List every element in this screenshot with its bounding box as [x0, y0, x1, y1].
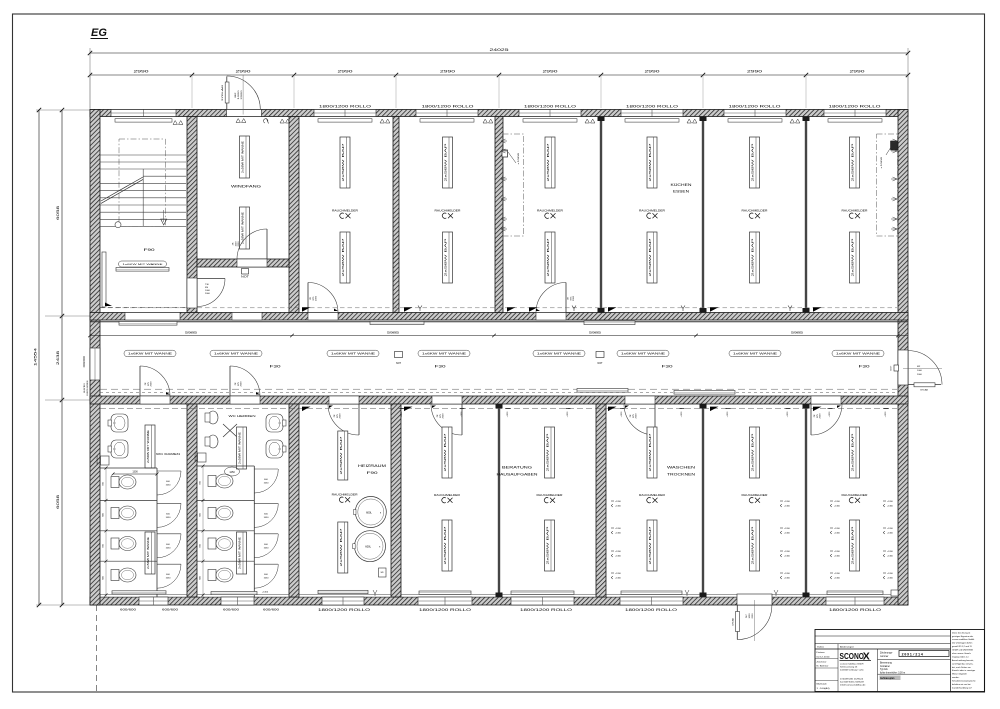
svg-text:F30: F30 [662, 365, 673, 369]
svg-text:1650: 1650 [166, 547, 172, 549]
svg-text:Aufmassplan: Aufmassplan [880, 677, 895, 680]
svg-text:KÜCHEN: KÜCHEN [671, 183, 693, 187]
svg-text:1800/1200 ROLLO: 1800/1200 ROLLO [625, 608, 677, 612]
svg-text:1x6KW MIT WANNE: 1x6KW MIT WANNE [123, 263, 164, 266]
svg-text:+1200: +1200 [885, 411, 887, 418]
svg-text:+1300: +1300 [784, 577, 791, 579]
svg-text:WINDFANG: WINDFANG [231, 185, 262, 189]
svg-text:F30: F30 [270, 365, 281, 369]
svg-text:WB DECKE: WB DECKE [195, 452, 197, 462]
svg-text:2x58W MIT WANNE: 2x58W MIT WANNE [147, 537, 150, 569]
svg-text:behalten wir uns bei: behalten wir uns bei [952, 683, 971, 686]
svg-text:1500/2000: 1500/2000 [83, 356, 86, 368]
svg-text:gemäß §§ 1,2 und 11: gemäß §§ 1,2 und 11 [952, 646, 972, 648]
svg-text:tel 0049 6431 21290-04: tel 0049 6431 21290-04 [840, 677, 864, 680]
svg-text:1800/1200 ROLLO: 1800/1200 ROLLO [829, 608, 881, 612]
svg-text:1650: 1650 [264, 578, 270, 580]
svg-text:Maßstab: Maßstab [817, 682, 828, 685]
svg-text:2000: 2000 [917, 374, 923, 376]
svg-text:2990: 2990 [645, 70, 660, 74]
svg-text:Benennung: Benennung [880, 662, 892, 664]
svg-text:600L: 600L [365, 545, 371, 549]
svg-text:1800/1200 ROLLO: 1800/1200 ROLLO [829, 105, 881, 109]
svg-text:1000: 1000 [749, 613, 751, 619]
svg-text:Typ EG: Typ EG [880, 669, 888, 671]
svg-text:RAUCHMELDER: RAUCHMELDER [639, 493, 665, 497]
svg-text:NOT: NOT [241, 277, 250, 279]
svg-text:info@sconox-mobilbau.de: info@sconox-mobilbau.de [840, 684, 866, 686]
svg-text:370LAB: 370LAB [221, 84, 224, 101]
svg-text:1x6KW MIT WANNE: 1x6KW MIT WANNE [214, 352, 259, 355]
svg-text:+1200: +1200 [784, 528, 791, 530]
svg-text:+1300: +1300 [615, 505, 622, 507]
svg-text:2990: 2990 [850, 70, 865, 74]
svg-text:+1300: +1300 [887, 555, 894, 557]
svg-text:2x58W BAP: 2x58W BAP [752, 238, 755, 277]
svg-text:2438: 2438 [56, 351, 60, 365]
svg-text:RAUCHMELDER: RAUCHMELDER [434, 493, 460, 497]
svg-text:RS: RS [205, 287, 209, 289]
svg-text:+1200: +1200 [834, 528, 841, 530]
svg-text:Ausschreibung benutzt,: Ausschreibung benutzt, [952, 659, 974, 662]
svg-text:2000: 2000 [573, 295, 575, 301]
svg-text:+1200: +1200 [615, 573, 622, 575]
svg-text:RAUCHMELDER: RAUCHMELDER [842, 209, 868, 213]
svg-text:+1200: +1200 [887, 551, 894, 553]
svg-text:F30: F30 [859, 365, 870, 369]
svg-text:2x58W BAP: 2x58W BAP [342, 143, 345, 182]
svg-text:RAUCHMELDER: RAUCHMELDER [435, 209, 461, 213]
svg-text:2x58W BAP: 2x58W BAP [547, 143, 550, 182]
svg-text:2000: 2000 [820, 413, 822, 419]
svg-text:24025: 24025 [490, 48, 509, 52]
svg-text:+1200: +1200 [507, 411, 509, 418]
svg-text:NOT: NOT [597, 362, 603, 365]
svg-text:DURCH BODEN: DURCH BODEN [87, 380, 89, 395]
svg-text:NOT: NOT [396, 362, 402, 365]
svg-text:2x58W MIT WANNE: 2x58W MIT WANNE [242, 212, 245, 244]
svg-text:1800/1200 ROLLO: 1800/1200 ROLLO [626, 105, 678, 109]
svg-text:2990: 2990 [134, 70, 149, 74]
svg-text:ohne unsere Geneh-: ohne unsere Geneh- [952, 652, 971, 655]
svg-text:Änderungen: Änderungen [840, 646, 855, 649]
svg-text:600/600: 600/600 [223, 608, 239, 612]
svg-text:1000: 1000 [235, 241, 237, 247]
svg-text:2x58W BAP: 2x58W BAP [649, 143, 652, 182]
svg-text:370LAB: 370LAB [732, 618, 735, 626]
svg-text:+1200: +1200 [615, 528, 622, 530]
svg-text:6058: 6058 [56, 495, 60, 509]
svg-text:1x6KW MIT WANNE: 1x6KW MIT WANNE [836, 352, 881, 355]
svg-text:+1200: +1200 [834, 573, 841, 575]
svg-text:+1300: +1300 [615, 532, 622, 534]
svg-text:lichte Innenhöhe: 3,30 m: lichte Innenhöhe: 3,30 m [880, 671, 905, 674]
svg-text:sconox mobilbau GmbH: sconox mobilbau GmbH [840, 663, 864, 665]
svg-text:1650: 1650 [166, 517, 172, 519]
svg-text:RAUCHMELDER: RAUCHMELDER [742, 209, 768, 213]
svg-text:+1200: +1200 [784, 501, 791, 503]
svg-text:2990: 2990 [747, 70, 762, 74]
svg-text:1x6KW MIT WANNE: 1x6KW MIT WANNE [733, 352, 778, 355]
svg-text:1x6KW MIT WANNE: 1x6KW MIT WANNE [422, 352, 467, 355]
svg-text:2x58W BAP: 2x58W BAP [852, 143, 855, 182]
svg-text:2000: 2000 [752, 613, 754, 619]
svg-text:2x58W BAP: 2x58W BAP [342, 238, 345, 277]
svg-text:2000: 2000 [316, 295, 318, 301]
svg-text:nummer: nummer [880, 655, 889, 658]
svg-text:1 : 100(A4): 1 : 100(A4) [817, 687, 830, 690]
svg-text:EG: EG [91, 27, 107, 39]
svg-text:SCONO: SCONO [840, 651, 865, 661]
svg-text:5985: 5985 [185, 331, 198, 335]
svg-text:2990: 2990 [440, 70, 455, 74]
svg-text:GmbH und 6/823 BGB: GmbH und 6/823 BGB [952, 650, 973, 652]
svg-text:600/600: 600/600 [120, 608, 136, 612]
svg-text:5985: 5985 [387, 331, 400, 335]
svg-text:+1300: +1300 [887, 505, 894, 507]
svg-text:1800/1200 ROLLO: 1800/1200 ROLLO [524, 105, 576, 109]
svg-text:HEIZRAUM: HEIZRAUM [358, 464, 386, 468]
svg-text:1650: 1650 [264, 547, 270, 549]
svg-text:2000: 2000 [340, 413, 342, 419]
svg-text:1800/1200 ROLLO: 1800/1200 ROLLO [319, 105, 371, 109]
svg-text:Zeichner: Zeichner [817, 660, 827, 663]
svg-text:+1200: +1200 [887, 573, 894, 575]
svg-text:2x58W BAP: 2x58W BAP [649, 526, 652, 565]
svg-text:1000: 1000 [205, 290, 211, 292]
svg-text:fax 0049 6431 21290-69: fax 0049 6431 21290-69 [840, 681, 865, 683]
svg-text:RAUCHMELDER: RAUCHMELDER [332, 209, 358, 213]
svg-text:2x58W MIT WANNE: 2x58W MIT WANNE [242, 141, 245, 173]
svg-text:2000: 2000 [151, 381, 153, 387]
svg-text:N. Böhmer: N. Böhmer [817, 665, 829, 668]
svg-text:+1300: +1300 [887, 577, 894, 579]
svg-text:+1200: +1200 [834, 501, 841, 503]
svg-text:600/600: 600/600 [263, 608, 279, 612]
svg-text:1250: 1250 [229, 471, 235, 474]
svg-text:HAUSAUFGABEN: HAUSAUFGABEN [497, 473, 539, 477]
svg-text:+1300: +1300 [615, 555, 622, 557]
svg-text:+1200: +1200 [401, 411, 403, 418]
svg-text:+1200: +1200 [615, 551, 622, 553]
svg-text:Zeichnungs-: Zeichnungs- [880, 653, 893, 655]
svg-text:2x58W MIT WANNE: 2x58W MIT WANNE [239, 537, 242, 569]
svg-text:F90: F90 [144, 248, 155, 252]
svg-text:+1200: +1200 [567, 411, 569, 418]
svg-text:5985: 5985 [589, 331, 602, 335]
svg-text:WC DAMEN: WC DAMEN [156, 452, 180, 456]
svg-text:370LAB: 370LAB [920, 389, 928, 392]
svg-text:F30: F30 [435, 365, 446, 369]
svg-text:600L: 600L [366, 511, 372, 515]
svg-text:1300: 1300 [132, 470, 138, 473]
svg-text:WC HERREN: WC HERREN [229, 414, 256, 418]
svg-text:Weise mitgeteilt: Weise mitgeteilt [952, 673, 967, 676]
svg-text:+1300: +1300 [834, 555, 841, 557]
svg-text:Schleusenweg 16: Schleusenweg 16 [840, 666, 858, 668]
svg-text:2x58W BAP: 2x58W BAP [444, 526, 447, 565]
svg-text:Datum: Datum [817, 651, 825, 654]
svg-text:ESSEN: ESSEN [673, 190, 690, 194]
svg-text:5985: 5985 [791, 331, 804, 335]
svg-text:2990: 2990 [543, 70, 558, 74]
svg-text:+1300: +1300 [784, 505, 791, 507]
svg-text:RAUCHMELDER: RAUCHMELDER [742, 493, 768, 497]
svg-text:2x58W MIT WANNE: 2x58W MIT WANNE [239, 432, 242, 464]
svg-text:02.12.2014: 02.12.2014 [817, 656, 831, 658]
svg-text:2000: 2000 [241, 381, 243, 387]
svg-text:BERATUNG: BERATUNG [502, 466, 532, 470]
svg-text:F90: F90 [367, 471, 378, 475]
svg-text:+1200: +1200 [887, 528, 894, 530]
svg-text:WASCHEN: WASCHEN [667, 466, 696, 470]
svg-text:Container: Container [880, 665, 890, 668]
svg-text:det, noch Dritten zur: det, noch Dritten zur [952, 666, 971, 669]
svg-text:+1300: +1300 [262, 592, 269, 594]
svg-text:+1200: +1200 [887, 501, 894, 503]
svg-text:2x58W BAP: 2x58W BAP [340, 436, 343, 475]
svg-text:2091/214: 2091/214 [902, 653, 924, 658]
svg-text:RAUCHMELDER: RAUCHMELDER [537, 209, 563, 213]
svg-text:+1300: +1300 [615, 577, 622, 579]
svg-text:geistiges Eigentum der: geistiges Eigentum der [952, 635, 973, 638]
svg-text:WB DECKE: WB DECKE [97, 455, 99, 465]
svg-text:Index: Index [817, 647, 825, 649]
svg-text:1650: 1650 [264, 517, 270, 519]
svg-text:2990: 2990 [338, 70, 353, 74]
svg-text:1800/1200 ROLLO: 1800/1200 ROLLO [318, 608, 370, 612]
svg-text:sconox mobilbau GmbH.: sconox mobilbau GmbH. [952, 639, 975, 641]
svg-text:2x58W BAP: 2x58W BAP [547, 238, 550, 277]
svg-text:+1200: +1200 [787, 411, 789, 418]
svg-text:1000: 1000 [238, 89, 240, 99]
svg-text:+1300: +1300 [834, 577, 841, 579]
svg-text:+1200: +1200 [727, 411, 729, 418]
svg-text:1x6KW MIT WANNE: 1x6KW MIT WANNE [621, 352, 666, 355]
svg-text:600/600: 600/600 [162, 608, 178, 612]
svg-text:2x58W BAP: 2x58W BAP [445, 238, 448, 277]
svg-text:NOT: NOT [891, 365, 893, 370]
svg-text:2x58W BAP: 2x58W BAP [752, 433, 755, 472]
svg-text:RAUCHMELDER: RAUCHMELDER [639, 209, 665, 213]
svg-text:Diese Zeichnung ist: Diese Zeichnung ist [952, 631, 971, 634]
svg-text:Schadenersatzansprüche: Schadenersatzansprüche [952, 680, 976, 683]
svg-text:+1300: +1300 [887, 532, 894, 534]
svg-text:RAUCHMELDER: RAUCHMELDER [537, 493, 563, 497]
svg-text:migung weder zur: migung weder zur [952, 655, 969, 658]
svg-text:+1200: +1200 [621, 411, 623, 418]
svg-text:2000: 2000 [443, 413, 445, 419]
svg-text:1x6KW MIT WANNE: 1x6KW MIT WANNE [128, 352, 173, 355]
svg-text:2990: 2990 [236, 70, 251, 74]
svg-text:2x58W BAP: 2x58W BAP [752, 526, 755, 565]
svg-text:2000: 2000 [205, 293, 211, 295]
svg-text:2x58W BAP: 2x58W BAP [547, 433, 550, 472]
svg-text:2000: 2000 [238, 241, 240, 247]
svg-text:2x58W BAP: 2x58W BAP [445, 143, 448, 182]
svg-text:2x58W BAP: 2x58W BAP [752, 143, 755, 182]
svg-text:2x58W BAP: 2x58W BAP [444, 433, 447, 472]
svg-text:+1200: +1200 [681, 411, 683, 418]
svg-text:1800/1200 ROLLO: 1800/1200 ROLLO [520, 608, 572, 612]
svg-text:Die Unterlagen dürfen: Die Unterlagen dürfen [952, 642, 973, 645]
svg-text:+1300: +1300 [834, 532, 841, 534]
svg-text:RAUCHMELDER: RAUCHMELDER [332, 493, 358, 497]
svg-text:zum Eigenbau verwen-: zum Eigenbau verwen- [952, 662, 974, 665]
svg-text:D-65549 Limburg / Lahn: D-65549 Limburg / Lahn [840, 668, 864, 671]
svg-text:+1200: +1200 [834, 551, 841, 553]
svg-text:RAUCHMELDER: RAUCHMELDER [842, 493, 868, 497]
svg-text:2x58W BAP: 2x58W BAP [649, 238, 652, 277]
svg-text:+1200: +1200 [615, 501, 622, 503]
svg-text:ELEKTRO: ELEKTRO [84, 383, 86, 393]
svg-text:1000: 1000 [917, 370, 923, 372]
svg-text:2x58W BAP: 2x58W BAP [852, 238, 855, 277]
svg-text:werden.: werden. [952, 676, 960, 679]
svg-text:+1300: +1300 [834, 505, 841, 507]
svg-text:2x58W BAP: 2x58W BAP [852, 526, 855, 565]
svg-text:1x6KW MIT WANNE: 1x6KW MIT WANNE [537, 352, 582, 355]
svg-text:1650: 1650 [166, 485, 172, 487]
svg-text:+1200: +1200 [784, 551, 791, 553]
svg-text:Einsicht oder in sonstiger: Einsicht oder in sonstiger [952, 669, 976, 672]
svg-text:+1100: +1100 [518, 151, 520, 165]
svg-text:1x6KW MIT WANNE: 1x6KW MIT WANNE [331, 352, 376, 355]
svg-text:2x58W BAP: 2x58W BAP [649, 433, 652, 472]
svg-text:2x58W BAP: 2x58W BAP [852, 433, 855, 472]
svg-text:2x58W MIT WANNE: 2x58W MIT WANNE [147, 430, 150, 463]
svg-text:+1200: +1200 [829, 411, 831, 418]
svg-text:1800/1200 ROLLO: 1800/1200 ROLLO [729, 105, 781, 109]
svg-text:6058: 6058 [56, 206, 60, 220]
svg-text:1800/1200 ROLLO: 1800/1200 ROLLO [422, 105, 474, 109]
svg-text:1650: 1650 [166, 578, 172, 580]
svg-text:+1300: +1300 [784, 532, 791, 534]
svg-text:+1100: +1100 [881, 155, 883, 169]
svg-text:2x58W BAP: 2x58W BAP [340, 528, 343, 567]
svg-text:+1200: +1200 [784, 573, 791, 575]
svg-text:2000: 2000 [241, 89, 243, 99]
svg-text:2x58W BAP: 2x58W BAP [547, 526, 550, 565]
svg-text:14554: 14554 [34, 348, 38, 366]
svg-text:+1300: +1300 [784, 555, 791, 557]
svg-text:1650: 1650 [264, 483, 270, 485]
svg-text:1800/1200 ROLLO: 1800/1200 ROLLO [419, 608, 471, 612]
svg-text:Zuwiderhandlung vor!: Zuwiderhandlung vor! [952, 687, 972, 690]
svg-text:TROCKNEN: TROCKNEN [667, 473, 696, 477]
svg-text:+1200: +1200 [461, 411, 463, 418]
svg-text:2000: 2000 [636, 413, 638, 419]
